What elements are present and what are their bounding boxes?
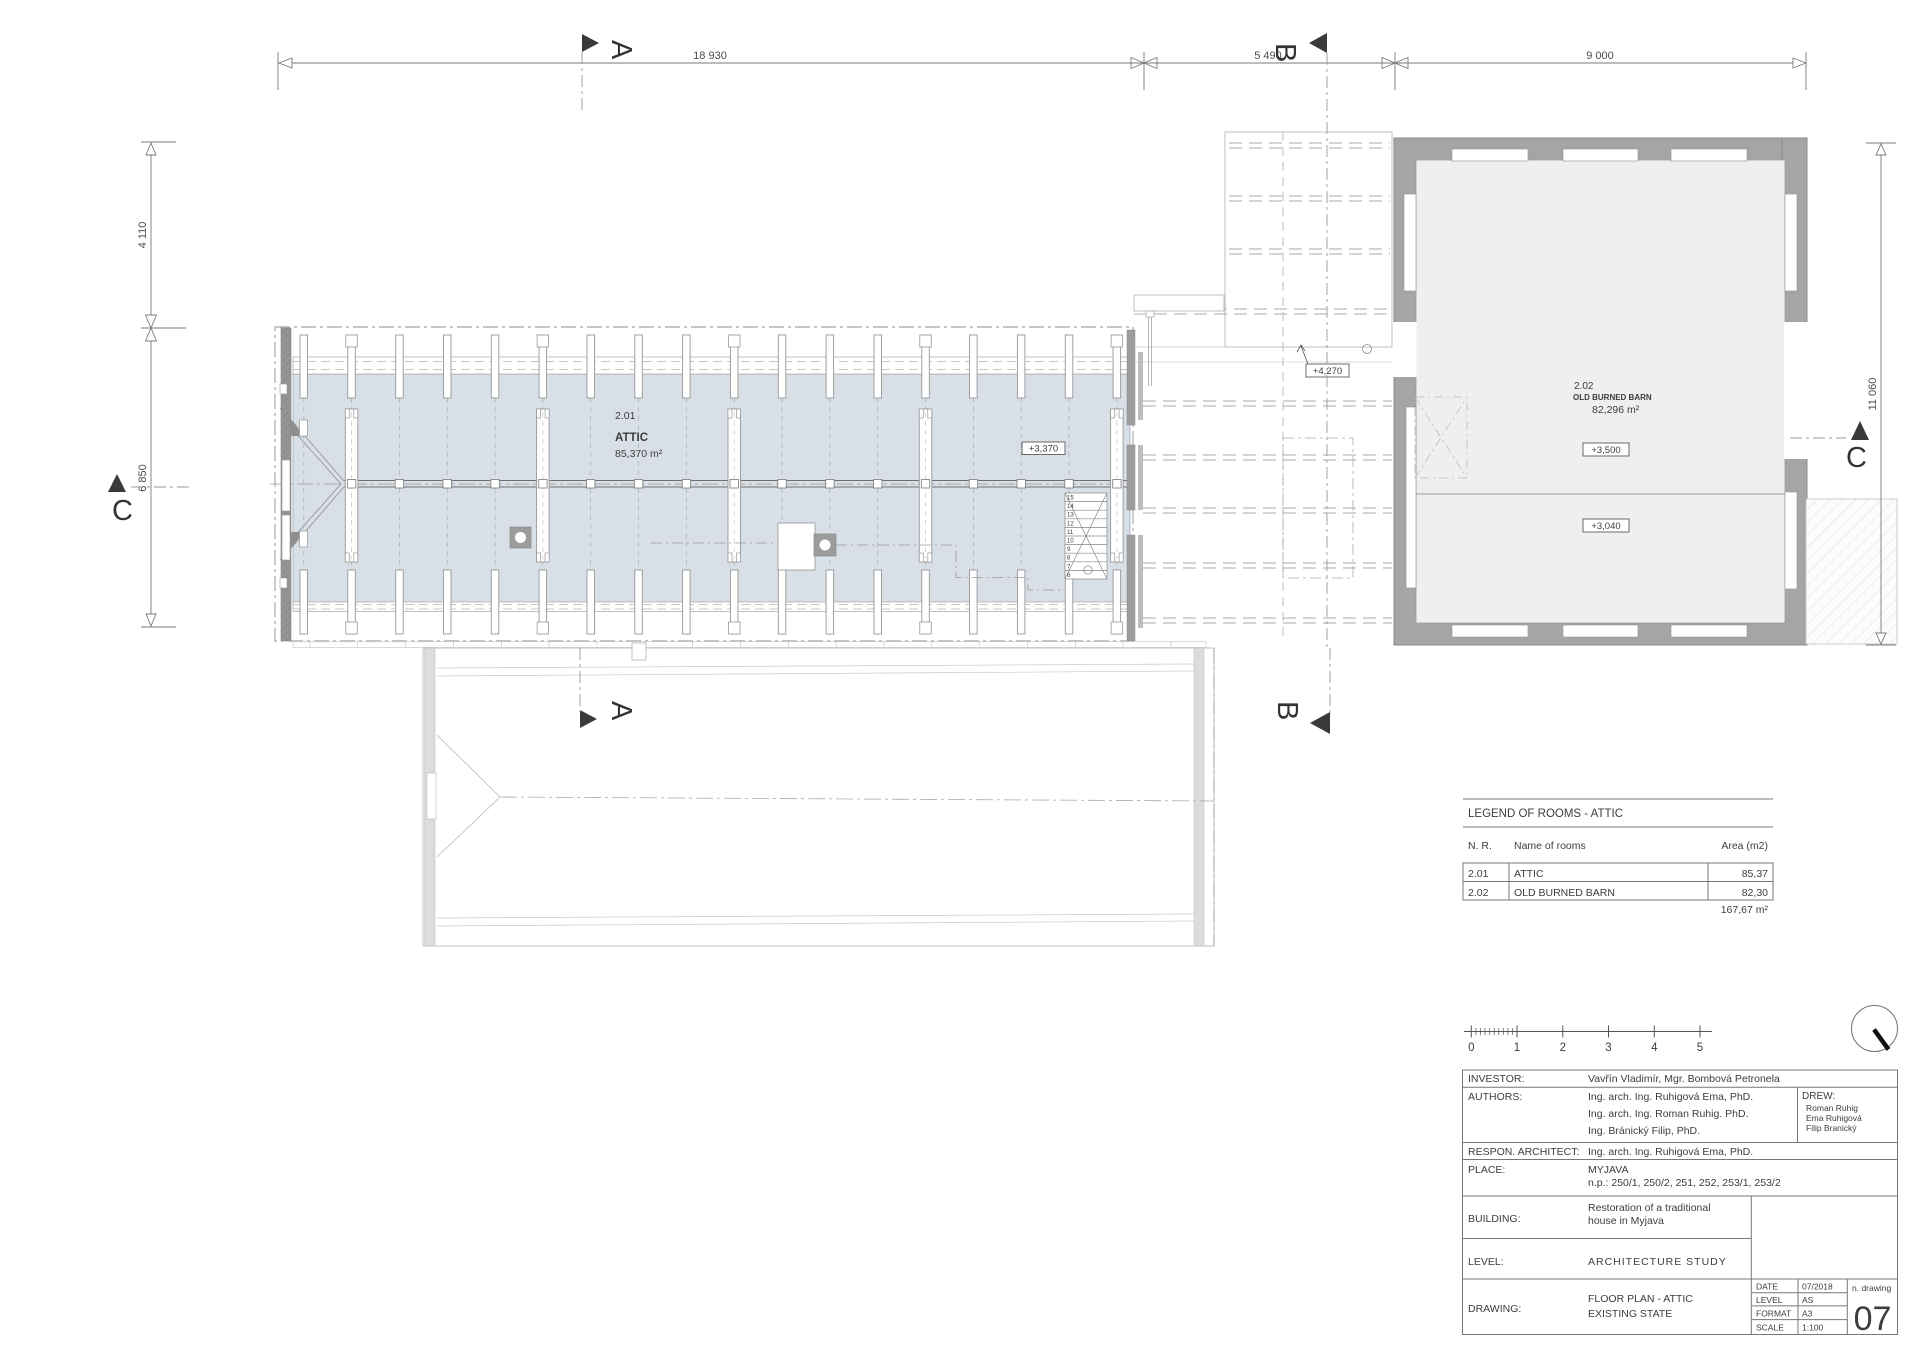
svg-text:82,30: 82,30 (1742, 887, 1768, 899)
svg-text:Filip Branický: Filip Branický (1806, 1123, 1857, 1133)
svg-text:AS: AS (1802, 1295, 1814, 1305)
svg-text:Vavřín Vladimír, Mgr. Bombová: Vavřín Vladimír, Mgr. Bombová Petronela (1588, 1073, 1780, 1085)
svg-text:A: A (605, 701, 637, 721)
svg-text:BUILDING:: BUILDING: (1468, 1213, 1521, 1225)
svg-text:INVESTOR:: INVESTOR: (1468, 1073, 1524, 1085)
svg-text:LEVEL:: LEVEL: (1468, 1256, 1504, 1268)
svg-text:18 930: 18 930 (693, 50, 727, 62)
svg-text:6 850: 6 850 (137, 464, 149, 492)
svg-text:9 000: 9 000 (1586, 50, 1614, 62)
svg-text:ATTIC: ATTIC (1514, 868, 1544, 880)
svg-text:Area (m2): Area (m2) (1721, 840, 1768, 852)
svg-text:EXISTING STATE: EXISTING STATE (1588, 1308, 1672, 1320)
svg-text:4: 4 (1651, 1042, 1658, 1054)
svg-text:B: B (1269, 43, 1301, 62)
svg-text:Ing. arch. Ing. Ruhigová Ema,: Ing. arch. Ing. Ruhigová Ema, PhD. (1588, 1146, 1753, 1158)
svg-text:A: A (605, 40, 637, 60)
svg-text:OLD BURNED BARN: OLD BURNED BARN (1573, 393, 1652, 402)
svg-text:OLD BURNED BARN: OLD BURNED BARN (1514, 887, 1615, 899)
svg-text:DATE: DATE (1756, 1282, 1778, 1292)
svg-text:12: 12 (1067, 521, 1074, 527)
svg-text:C: C (112, 495, 133, 527)
svg-text:14: 14 (1067, 504, 1074, 510)
svg-text:11: 11 (1067, 530, 1074, 536)
svg-text:MYJAVA: MYJAVA (1588, 1164, 1628, 1176)
svg-text:+4,270: +4,270 (1313, 366, 1342, 377)
svg-text:house in Myjava: house in Myjava (1588, 1215, 1664, 1227)
svg-text:Ing. Bránický Filip, PhD.: Ing. Bránický Filip, PhD. (1588, 1125, 1700, 1137)
svg-text:2.01: 2.01 (615, 410, 636, 422)
svg-text:5: 5 (1697, 1042, 1703, 1054)
svg-text:1:100: 1:100 (1802, 1323, 1824, 1333)
svg-text:2.02: 2.02 (1574, 381, 1594, 392)
svg-text:+3,500: +3,500 (1591, 445, 1620, 456)
svg-text:+3,370: +3,370 (1029, 444, 1058, 455)
svg-text:SCALE: SCALE (1756, 1323, 1784, 1333)
svg-text:07: 07 (1854, 1300, 1892, 1338)
svg-text:ATTIC: ATTIC (615, 432, 648, 444)
svg-text:2: 2 (1560, 1042, 1566, 1054)
svg-text:N. R.: N. R. (1468, 840, 1492, 852)
svg-text:AUTHORS:: AUTHORS: (1468, 1091, 1522, 1103)
svg-text:2.02: 2.02 (1468, 887, 1489, 899)
svg-text:DREW:: DREW: (1802, 1091, 1835, 1102)
svg-text:Restoration of a traditional: Restoration of a traditional (1588, 1202, 1711, 1214)
svg-text:B: B (1271, 701, 1303, 720)
svg-text:85,370 m²: 85,370 m² (615, 448, 663, 460)
svg-text:82,296 m²: 82,296 m² (1592, 404, 1640, 416)
svg-text:167,67 m²: 167,67 m² (1721, 904, 1769, 916)
svg-text:Ing. arch. Ing. Roman Ruhig. P: Ing. arch. Ing. Roman Ruhig. PhD. (1588, 1108, 1749, 1120)
svg-text:RESPON. ARCHITECT:: RESPON. ARCHITECT: (1468, 1146, 1579, 1158)
svg-text:LEGEND OF ROOMS - ATTIC: LEGEND OF ROOMS - ATTIC (1468, 808, 1623, 820)
svg-text:2.01: 2.01 (1468, 868, 1489, 880)
svg-text:n.p.: 250/1, 250/2, 251, 252,: n.p.: 250/1, 250/2, 251, 252, 253/1, 253… (1588, 1177, 1781, 1189)
svg-text:07/2018: 07/2018 (1802, 1282, 1833, 1292)
svg-text:PLACE:: PLACE: (1468, 1164, 1505, 1176)
svg-text:+3,040: +3,040 (1591, 521, 1620, 532)
svg-text:13: 13 (1067, 513, 1074, 519)
svg-text:15: 15 (1067, 496, 1074, 502)
svg-text:FLOOR PLAN - ATTIC: FLOOR PLAN - ATTIC (1588, 1293, 1693, 1305)
svg-text:A3: A3 (1802, 1309, 1813, 1319)
svg-text:FORMAT: FORMAT (1756, 1309, 1791, 1319)
svg-text:4 110: 4 110 (137, 222, 149, 249)
svg-text:0: 0 (1468, 1042, 1474, 1054)
svg-text:Ing. arch. Ing. Ruhigová Ema,: Ing. arch. Ing. Ruhigová Ema, PhD. (1588, 1091, 1753, 1103)
svg-text:C: C (1846, 442, 1867, 474)
svg-text:10: 10 (1067, 539, 1074, 545)
svg-text:11 060: 11 060 (1867, 378, 1879, 411)
svg-text:n. drawing: n. drawing (1852, 1283, 1891, 1293)
svg-text:DRAWING:: DRAWING: (1468, 1303, 1521, 1315)
svg-text:Name of rooms: Name of rooms (1514, 840, 1586, 852)
svg-text:ARCHITECTURE STUDY: ARCHITECTURE STUDY (1588, 1256, 1727, 1268)
svg-text:Roman Ruhig: Roman Ruhig (1806, 1103, 1858, 1113)
svg-text:3: 3 (1605, 1042, 1611, 1054)
svg-text:Ema Ruhigová: Ema Ruhigová (1806, 1113, 1862, 1123)
svg-text:LEVEL: LEVEL (1756, 1295, 1783, 1305)
svg-text:85,37: 85,37 (1742, 868, 1768, 880)
svg-text:1: 1 (1514, 1042, 1520, 1054)
